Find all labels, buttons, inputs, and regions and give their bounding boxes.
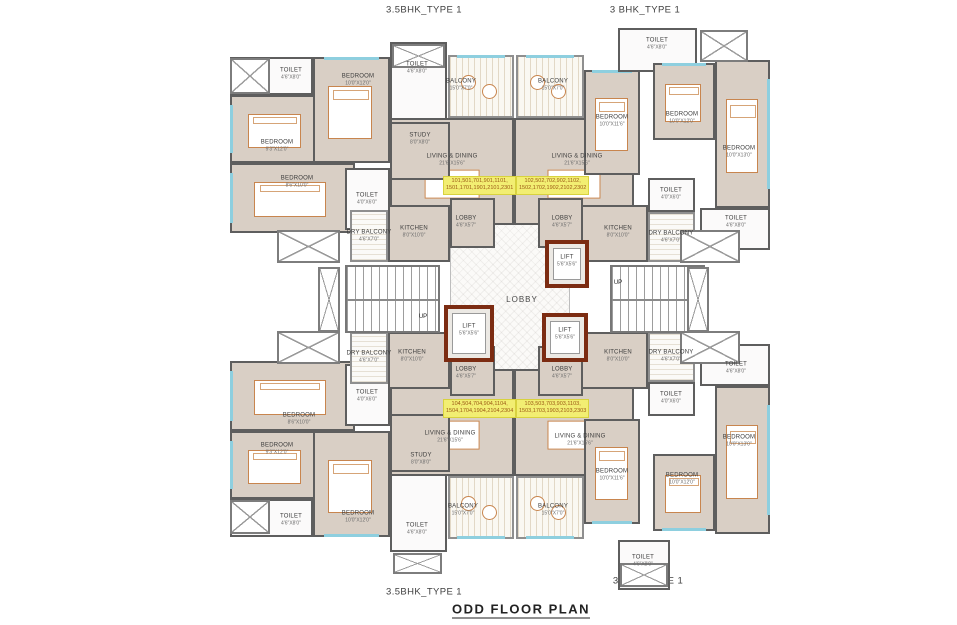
window-glass xyxy=(526,55,575,58)
label-toilet-bl: TOILET4'6"X8'0" xyxy=(280,513,302,526)
room-name-text: LOBBY xyxy=(506,295,538,305)
room-name-text: DRY BALCONY xyxy=(649,230,694,237)
room-name-text: LOBBY xyxy=(455,366,476,373)
unit-numbers-line2: 1502,1702,1902,2102,2302 xyxy=(519,185,586,192)
label-kitchen-bl: KITCHEN8'0"X10'0" xyxy=(398,349,426,362)
label-bedroom-tl-lower: BEDROOM8'6"X10'0" xyxy=(281,175,313,188)
room-dimension-text: 21'6"X15'6" xyxy=(424,438,475,444)
unit-numbers-line2: 1503,1703,1903,2103,2303 xyxy=(519,408,586,415)
label-kitchen-tr: KITCHEN8'0"X10'0" xyxy=(604,225,632,238)
room-name-text: BEDROOM xyxy=(261,442,293,449)
label-living-dining-tr: LIVING & DINING21'6"X15'6" xyxy=(551,153,602,166)
room-name-text: KITCHEN xyxy=(398,349,426,356)
room-dimension-text: 9'3"X12'0" xyxy=(261,147,293,153)
room-name-text: BEDROOM xyxy=(283,412,315,419)
room-dimension-text: 4'6"X5'7" xyxy=(551,374,572,380)
room-dimension-text: 15'0"X7'0" xyxy=(538,511,568,517)
room-name-text: LIFT xyxy=(555,327,575,334)
unit-numbers-102: 102,502,702,902,1102,1502,1702,1902,2102… xyxy=(516,176,589,195)
room-name-text: TOILET xyxy=(406,522,428,529)
room-name-text: STUDY xyxy=(410,452,431,459)
bed-icon xyxy=(328,460,372,513)
room-dimension-text: 5'6"X5'6" xyxy=(557,262,577,268)
unit-numbers-103: 103,503,703,903,1103,1503,1703,1903,2103… xyxy=(516,399,589,418)
room-name-text: LIVING & DINING xyxy=(551,153,602,160)
bed-icon xyxy=(328,86,372,139)
room-name-text: BEDROOM xyxy=(261,139,293,146)
label-dry-balcony-br: DRY BALCONY4'6"X7'0" xyxy=(649,349,694,362)
label-toilet-br-right: TOILET4'6"X8'0" xyxy=(725,361,747,374)
room-dimension-text: 4'6"X8'0" xyxy=(406,69,428,75)
room-name-text: KITCHEN xyxy=(400,225,428,232)
room-dimension-text: 10'0"X12'0" xyxy=(666,480,698,486)
room-name-text: BEDROOM xyxy=(596,468,628,475)
room-name-text: TOILET xyxy=(280,513,302,520)
room-dimension-text: 8'0"X10'0" xyxy=(400,233,428,239)
room-name-text: BEDROOM xyxy=(596,114,628,121)
window-glass xyxy=(662,528,706,531)
room-bedroom-tl-left xyxy=(230,95,322,163)
window-glass xyxy=(324,57,379,60)
bed-icon xyxy=(254,380,326,415)
label-balcony-tl: BALCONY15'0"X7'0" xyxy=(446,78,476,91)
room-dimension-text: 4'6"X8'0" xyxy=(280,521,302,527)
room-dimension-text: 10'0"X12'0" xyxy=(342,81,374,87)
unit-type-label-bottom-left: 3.5BHK_TYPE 1 xyxy=(386,587,462,598)
label-bedroom-br-mid: BEDROOM10'0"X12'0" xyxy=(666,472,698,485)
unit-numbers-line1: 104,504,704,904,1104, xyxy=(446,401,513,408)
room-dimension-text: 10'0"X13'0" xyxy=(723,442,755,448)
label-toilet-br-mid: TOILET4'0"X6'0" xyxy=(660,391,682,404)
room-duct-left-2 xyxy=(318,267,340,332)
unit-type-label-top-left: 3.5BHK_TYPE 1 xyxy=(386,5,462,16)
room-dimension-text: 8'0"X10'0" xyxy=(604,233,632,239)
window-glass xyxy=(230,173,233,223)
room-dimension-text: 15'0"X7'0" xyxy=(446,86,476,92)
room-dimension-text: 10'0"X13'0" xyxy=(723,153,755,159)
label-bedroom-tl-left: BEDROOM9'3"X12'0" xyxy=(261,139,293,152)
room-dimension-text: 4'0"X6'0" xyxy=(660,399,682,405)
label-living-dining-tl: LIVING & DINING21'6"X15'6" xyxy=(426,153,477,166)
label-bedroom-bl-left: BEDROOM9'3"X12'0" xyxy=(261,442,293,455)
stair-up-label: UP xyxy=(419,314,427,320)
room-name-text: KITCHEN xyxy=(604,349,632,356)
label-dry-balcony-tr: DRY BALCONY4'6"X7'0" xyxy=(649,230,694,243)
room-name-text: DRY BALCONY xyxy=(649,349,694,356)
label-central-lobby: LOBBY xyxy=(506,295,538,305)
window-glass xyxy=(324,534,379,537)
room-dimension-text: 8'0"X8'0" xyxy=(410,460,431,466)
room-name-text: LIVING & DINING xyxy=(554,433,605,440)
room-name-text: LOBBY xyxy=(551,215,572,222)
room-dimension-text: 4'6"X7'0" xyxy=(347,358,392,364)
room-dimension-text: 4'0"X6'0" xyxy=(356,200,378,206)
room-bedroom-tr-mid xyxy=(653,63,715,140)
room-name-text: LIVING & DINING xyxy=(424,430,475,437)
room-name-text: TOILET xyxy=(646,37,668,44)
label-lobby-tl: LOBBY4'6"X5'7" xyxy=(455,215,476,228)
room-dimension-text: 4'6"X8'0" xyxy=(725,369,747,375)
label-bedroom-tr-right: BEDROOM10'0"X13'0" xyxy=(723,145,755,158)
room-dimension-text: 21'6"X15'6" xyxy=(551,161,602,167)
room-shower-tl xyxy=(230,58,270,94)
window-glass xyxy=(230,441,233,490)
room-staircase-left xyxy=(345,265,440,333)
room-dimension-text: 4'0"X6'0" xyxy=(356,397,378,403)
room-name-text: BEDROOM xyxy=(666,472,698,479)
label-lobby-bl: LOBBY4'6"X5'7" xyxy=(455,366,476,379)
window-glass xyxy=(457,536,504,539)
label-balcony-tr: BALCONY15'0"X7'0" xyxy=(538,78,568,91)
room-dimension-text: 4'6"X5'7" xyxy=(455,223,476,229)
room-name-text: BEDROOM xyxy=(281,175,313,182)
room-bedroom-br-mid xyxy=(653,454,715,531)
window-glass xyxy=(767,79,770,188)
window-glass xyxy=(230,371,233,421)
room-name-text: TOILET xyxy=(660,391,682,398)
label-lift-3: LIFT5'6"X5'6" xyxy=(555,327,575,340)
room-name-text: BALCONY xyxy=(538,503,568,510)
room-duct-left-3 xyxy=(277,331,340,364)
room-dimension-text: 8'6"X10'0" xyxy=(283,420,315,426)
room-shower-bl xyxy=(230,500,270,534)
unit-numbers-line1: 102,502,702,902,1102, xyxy=(519,178,586,185)
label-balcony-bl: BALCONY15'0"X7'0" xyxy=(448,503,478,516)
room-shower-bl-bot xyxy=(393,553,442,574)
room-dimension-text: 5'6"X5'6" xyxy=(459,331,479,337)
room-name-text: LOBBY xyxy=(455,215,476,222)
room-duct-right-2 xyxy=(687,267,709,332)
room-dimension-text: 4'6"X8'0" xyxy=(280,75,302,81)
room-name-text: STUDY xyxy=(409,132,430,139)
room-name-text: LOBBY xyxy=(551,366,572,373)
room-dimension-text: 21'6"X15'6" xyxy=(426,161,477,167)
label-study-tl: STUDY8'0"X8'0" xyxy=(409,132,430,145)
room-name-text: LIFT xyxy=(459,323,479,330)
room-name-text: TOILET xyxy=(725,361,747,368)
window-glass xyxy=(592,521,632,524)
label-living-dining-bl: LIVING & DINING21'6"X15'6" xyxy=(424,430,475,443)
label-lobby-br: LOBBY4'6"X5'7" xyxy=(551,366,572,379)
label-bedroom-tl-mid: BEDROOM10'0"X12'0" xyxy=(342,73,374,86)
room-dimension-text: 5'6"X5'6" xyxy=(555,335,575,341)
label-bedroom-br-right: BEDROOM10'0"X13'0" xyxy=(723,434,755,447)
unit-numbers-104: 104,504,704,904,1104,1504,1704,1904,2104… xyxy=(443,399,516,418)
room-name-text: LIVING & DINING xyxy=(426,153,477,160)
room-toilet-bl-bot xyxy=(390,472,447,552)
room-name-text: TOILET xyxy=(356,192,378,199)
room-dimension-text: 8'0"X10'0" xyxy=(604,357,632,363)
label-toilet-tl: TOILET4'6"X8'0" xyxy=(280,67,302,80)
room-dimension-text: 21'6"X15'6" xyxy=(554,441,605,447)
room-dimension-text: 10'0"X11'6" xyxy=(596,122,628,128)
room-bedroom-br-right xyxy=(715,386,770,534)
room-dimension-text: 8'0"X10'0" xyxy=(398,357,426,363)
room-name-text: TOILET xyxy=(725,215,747,222)
label-bedroom-br-left: BEDROOM10'0"X11'6" xyxy=(596,468,628,481)
room-name-text: LIFT xyxy=(557,254,577,261)
room-name-text: DRY BALCONY xyxy=(347,350,392,357)
room-name-text: BEDROOM xyxy=(342,73,374,80)
room-name-text: TOILET xyxy=(356,389,378,396)
label-living-dining-br: LIVING & DINING21'6"X15'6" xyxy=(554,433,605,446)
label-toilet-tr-mid: TOILET4'0"X6'0" xyxy=(660,187,682,200)
room-dimension-text: 15'0"X7'0" xyxy=(448,511,478,517)
window-glass xyxy=(526,536,575,539)
label-bedroom-bl-mid: BEDROOM10'0"X12'0" xyxy=(342,510,374,523)
stair-up-label: UP xyxy=(614,280,622,286)
room-dimension-text: 4'6"X8'0" xyxy=(632,562,654,568)
room-duct-tr-top xyxy=(700,30,748,62)
label-toilet-br-bot: TOILET4'6"X8'0" xyxy=(632,554,654,567)
label-dry-balcony-tl: DRY BALCONY4'6"X7'0" xyxy=(347,229,392,242)
room-dimension-text: 4'6"X8'0" xyxy=(406,530,428,536)
room-dimension-text: 4'6"X5'7" xyxy=(455,374,476,380)
room-dimension-text: 4'6"X8'0" xyxy=(725,223,747,229)
unit-type-label-top-right: 3 BHK_TYPE 1 xyxy=(610,5,680,16)
room-dimension-text: 10'0"X11'6" xyxy=(596,476,628,482)
room-dimension-text: 4'6"X5'7" xyxy=(551,223,572,229)
label-kitchen-tl: KITCHEN8'0"X10'0" xyxy=(400,225,428,238)
floor-plan-canvas: LOBBYTOILET4'6"X8'0"BEDROOM9'3"X12'0"BED… xyxy=(0,0,957,625)
room-name-text: BALCONY xyxy=(448,503,478,510)
room-dimension-text: 4'6"X8'0" xyxy=(646,45,668,51)
bed-icon xyxy=(726,99,758,173)
room-duct-left-1 xyxy=(277,230,340,263)
room-name-text: TOILET xyxy=(660,187,682,194)
unit-numbers-line1: 101,501,701,901,1101, xyxy=(446,178,513,185)
room-name-text: BEDROOM xyxy=(666,111,698,118)
window-glass xyxy=(230,105,233,154)
room-bedroom-tr-right xyxy=(715,60,770,208)
balcony-chair-icon xyxy=(482,505,497,520)
room-name-text: DRY BALCONY xyxy=(347,229,392,236)
room-name-text: BALCONY xyxy=(538,78,568,85)
label-toilet-bl-mid: TOILET4'0"X6'0" xyxy=(356,389,378,402)
label-bedroom-bl-upper: BEDROOM8'6"X10'0" xyxy=(283,412,315,425)
room-bedroom-tl-lower xyxy=(230,163,355,233)
label-dry-balcony-bl: DRY BALCONY4'6"X7'0" xyxy=(347,350,392,363)
room-dimension-text: 4'0"X6'0" xyxy=(660,195,682,201)
room-dimension-text: 4'6"X7'0" xyxy=(649,238,694,244)
room-dimension-text: 4'6"X7'0" xyxy=(347,237,392,243)
label-study-bl: STUDY8'0"X8'0" xyxy=(410,452,431,465)
room-dimension-text: 8'6"X10'0" xyxy=(281,183,313,189)
unit-numbers-line2: 1501,1701,1901,2101,2301 xyxy=(446,185,513,192)
label-toilet-tl-top: TOILET4'6"X8'0" xyxy=(406,61,428,74)
label-toilet-tr-right: TOILET4'6"X8'0" xyxy=(725,215,747,228)
label-lobby-tr: LOBBY4'6"X5'7" xyxy=(551,215,572,228)
label-toilet-tl-mid: TOILET4'0"X6'0" xyxy=(356,192,378,205)
room-study-tl xyxy=(390,122,450,180)
floor-plan-drawing: LOBBYTOILET4'6"X8'0"BEDROOM9'3"X12'0"BED… xyxy=(0,0,957,625)
room-dimension-text: 10'0"X12'0" xyxy=(342,518,374,524)
page-title: ODD FLOOR PLAN xyxy=(452,602,590,617)
label-kitchen-br: KITCHEN8'0"X10'0" xyxy=(604,349,632,362)
room-bedroom-bl-left xyxy=(230,431,322,499)
label-balcony-br: BALCONY15'0"X7'0" xyxy=(538,503,568,516)
label-toilet-bl-bot: TOILET4'6"X8'0" xyxy=(406,522,428,535)
label-bedroom-tr-mid: BEDROOM10'0"X12'0" xyxy=(666,111,698,124)
room-name-text: BEDROOM xyxy=(342,510,374,517)
label-lift-2: LIFT5'6"X5'6" xyxy=(459,323,479,336)
room-name-text: BEDROOM xyxy=(723,145,755,152)
room-name-text: TOILET xyxy=(632,554,654,561)
unit-numbers-101: 101,501,701,901,1101,1501,1701,1901,2101… xyxy=(443,176,516,195)
room-dimension-text: 15'0"X7'0" xyxy=(538,86,568,92)
room-name-text: BEDROOM xyxy=(723,434,755,441)
label-bedroom-tr-left: BEDROOM10'0"X11'6" xyxy=(596,114,628,127)
room-dimension-text: 8'0"X8'0" xyxy=(409,140,430,146)
room-dimension-text: 9'3"X12'0" xyxy=(261,450,293,456)
label-lift-1: LIFT5'6"X5'6" xyxy=(557,254,577,267)
room-name-text: TOILET xyxy=(280,67,302,74)
window-glass xyxy=(457,55,504,58)
window-glass xyxy=(662,63,706,66)
label-toilet-tr-top: TOILET4'6"X8'0" xyxy=(646,37,668,50)
unit-numbers-line1: 103,503,703,903,1103, xyxy=(519,401,586,408)
window-glass xyxy=(767,405,770,514)
room-name-text: KITCHEN xyxy=(604,225,632,232)
unit-numbers-line2: 1504,1704,1904,2104,2304 xyxy=(446,408,513,415)
room-dimension-text: 10'0"X12'0" xyxy=(666,119,698,125)
balcony-chair-icon xyxy=(482,84,497,99)
room-name-text: BALCONY xyxy=(446,78,476,85)
room-name-text: TOILET xyxy=(406,61,428,68)
room-dimension-text: 4'6"X7'0" xyxy=(649,357,694,363)
